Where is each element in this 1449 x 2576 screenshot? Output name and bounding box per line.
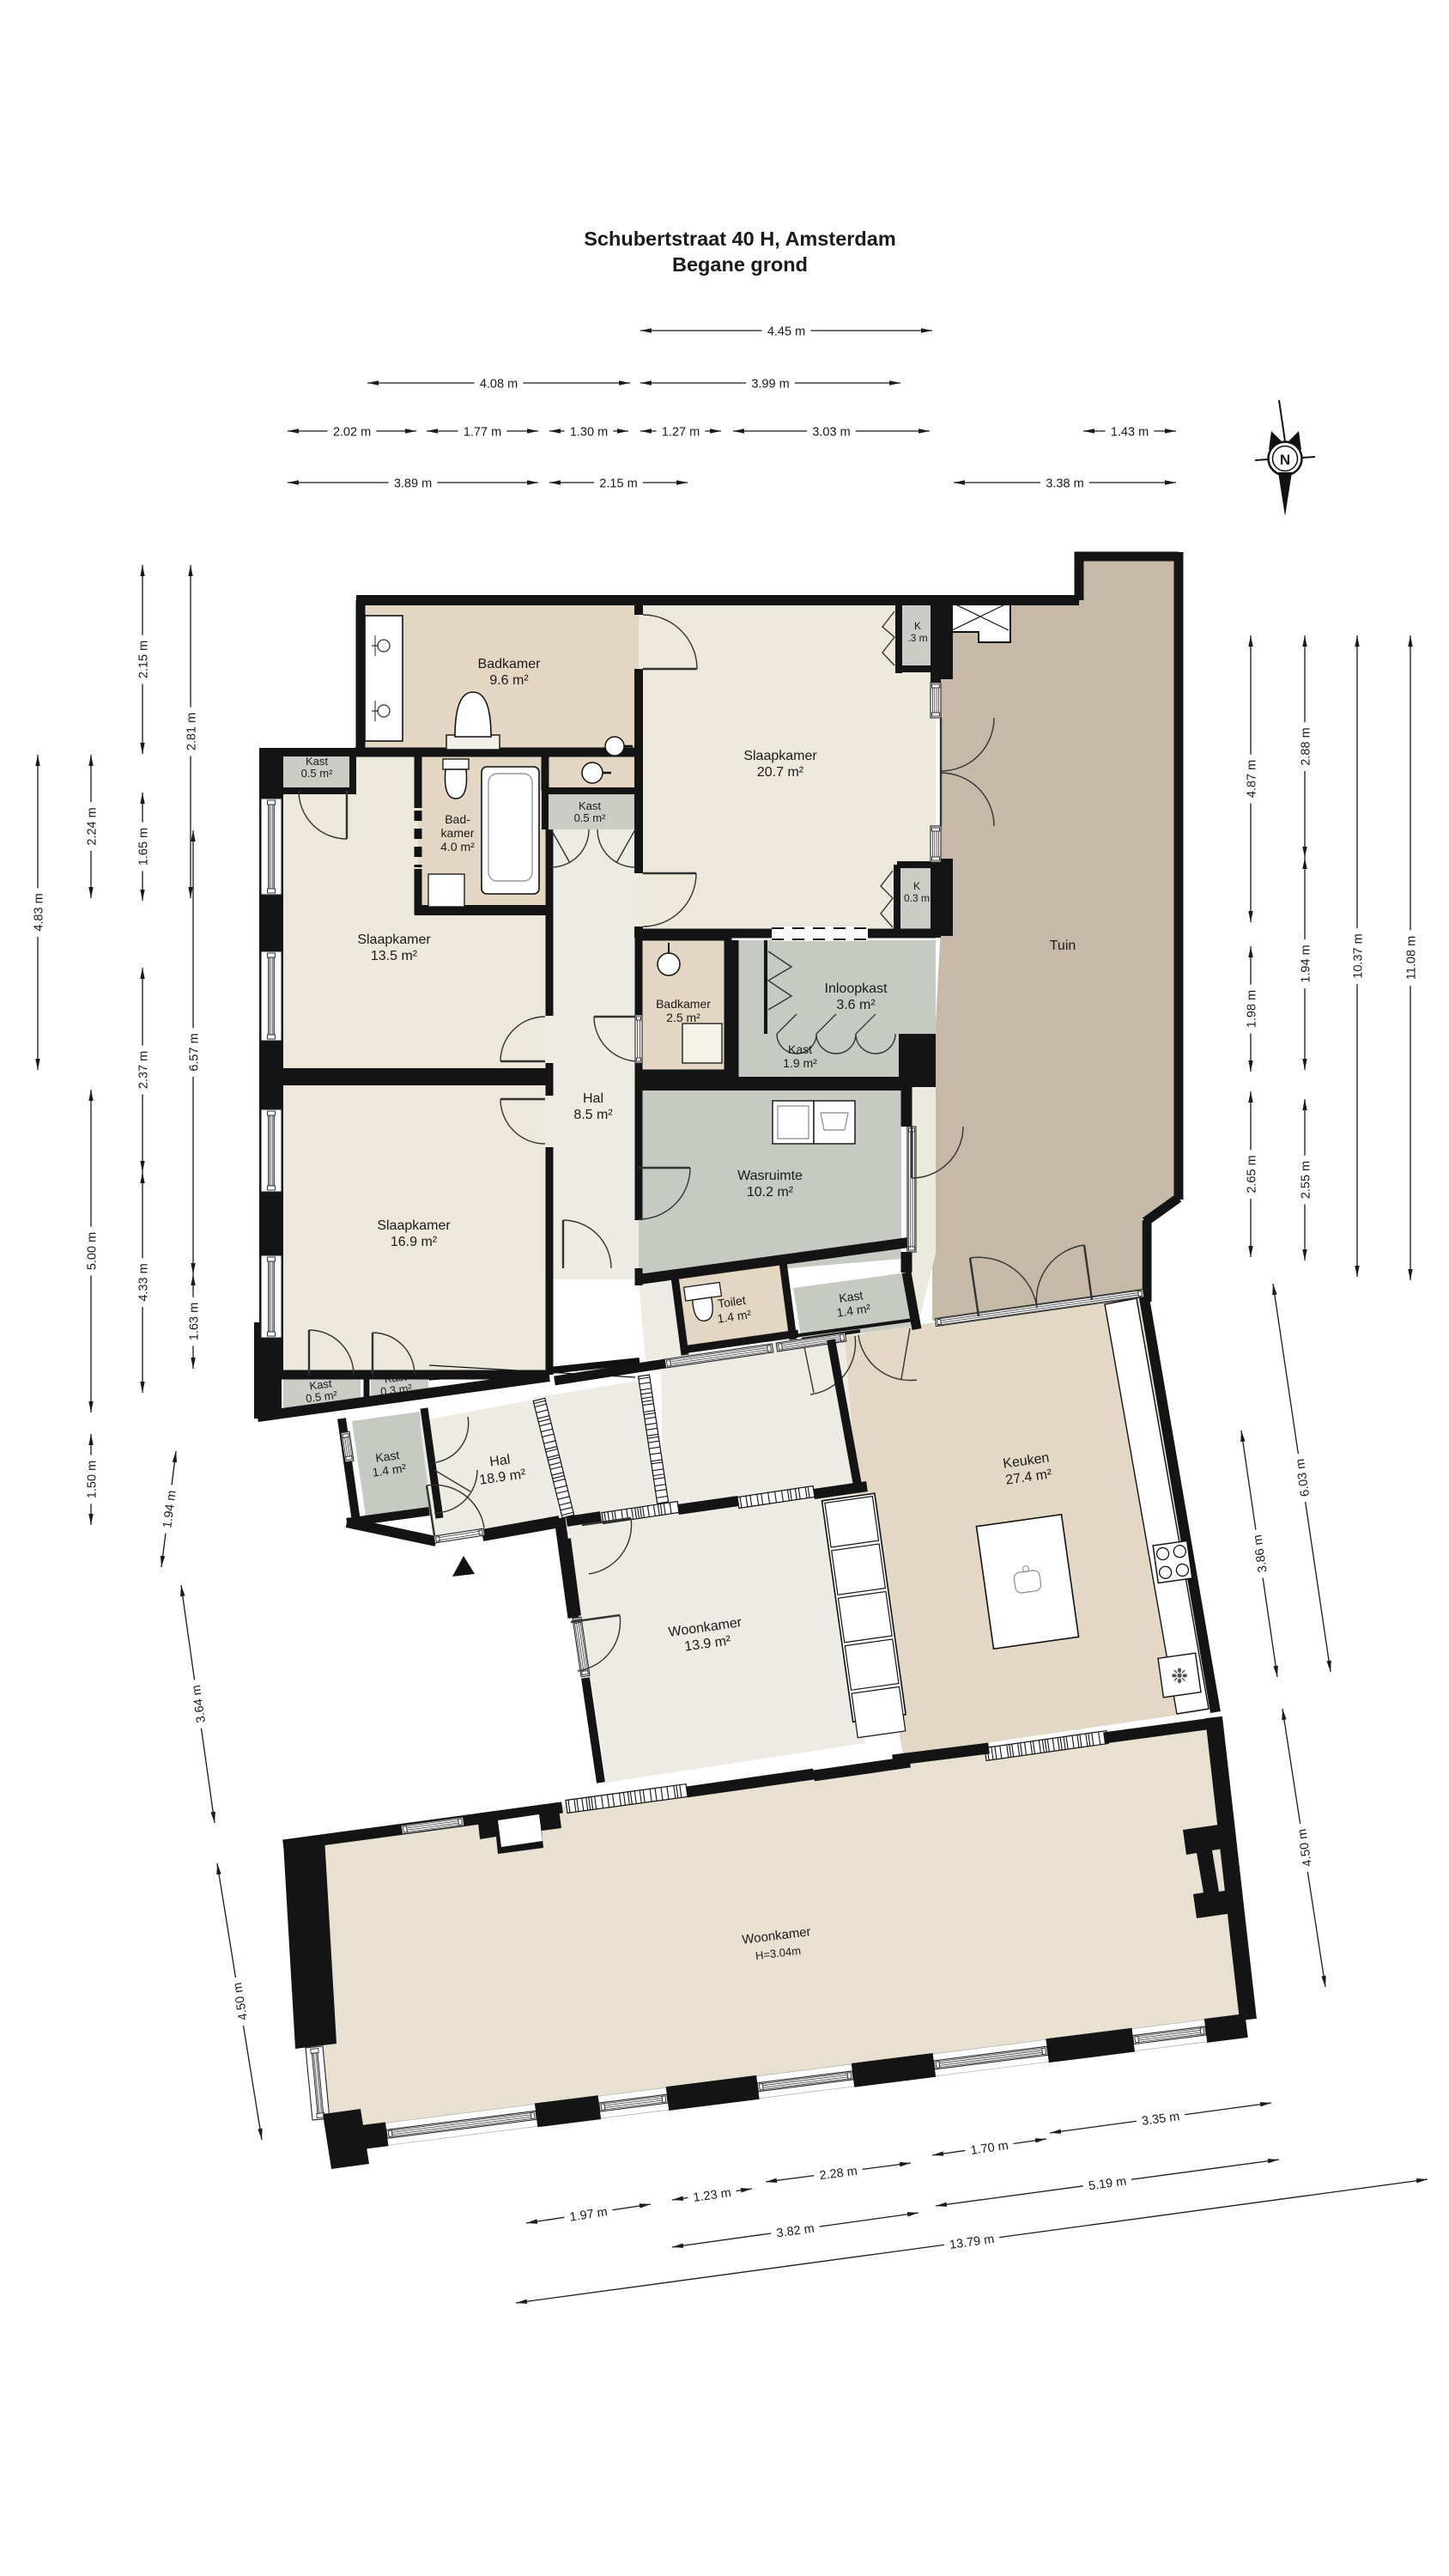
svg-text:Badkamer: Badkamer [478, 657, 542, 671]
svg-text:2.24 m: 2.24 m [86, 807, 100, 845]
svg-text:1.63 m: 1.63 m [188, 1303, 202, 1340]
svg-text:2.5 m²: 2.5 m² [666, 1011, 700, 1024]
svg-text:2.02 m: 2.02 m [333, 426, 371, 440]
svg-text:9.6 m²: 9.6 m² [489, 673, 529, 688]
svg-text:K: K [913, 880, 920, 892]
svg-text:10.37 m: 10.37 m [1352, 933, 1366, 978]
svg-text:2.37 m: 2.37 m [137, 1051, 151, 1089]
svg-text:3.99 m: 3.99 m [751, 378, 789, 392]
svg-text:0.5 m²: 0.5 m² [574, 811, 607, 824]
svg-text:Kast: Kast [306, 755, 328, 768]
svg-text:Hal: Hal [583, 1091, 603, 1106]
svg-text:1.98 m: 1.98 m [1246, 990, 1259, 1028]
svg-text:3.03 m: 3.03 m [812, 426, 850, 440]
svg-text:4.83 m: 4.83 m [33, 893, 46, 931]
svg-text:1.43 m: 1.43 m [1111, 426, 1149, 440]
svg-text:N: N [1280, 452, 1290, 468]
svg-text:.3 m: .3 m [907, 632, 927, 644]
svg-text:2.55 m: 2.55 m [1300, 1161, 1313, 1199]
svg-text:0.3 m: 0.3 m [904, 892, 930, 904]
svg-text:Begane grond: Begane grond [672, 253, 808, 276]
svg-text:Kast: Kast [579, 799, 601, 812]
svg-text:Tuin: Tuin [1050, 939, 1076, 953]
svg-text:10.2 m²: 10.2 m² [747, 1185, 794, 1200]
svg-text:13.5 m²: 13.5 m² [371, 949, 418, 963]
svg-text:2.81 m: 2.81 m [185, 713, 199, 750]
svg-text:0.5 m²: 0.5 m² [301, 767, 334, 780]
svg-text:Slaapkamer: Slaapkamer [357, 933, 431, 947]
svg-text:Badkamer: Badkamer [656, 997, 711, 1011]
svg-text:2.15 m: 2.15 m [137, 641, 151, 678]
svg-text:1.50 m: 1.50 m [86, 1461, 100, 1498]
svg-text:Kast: Kast [788, 1042, 812, 1056]
svg-text:1.27 m: 1.27 m [662, 426, 700, 440]
svg-text:2.15 m: 2.15 m [599, 477, 637, 491]
svg-text:11.08 m: 11.08 m [1405, 936, 1419, 980]
svg-text:8.5 m²: 8.5 m² [573, 1108, 613, 1122]
svg-text:3.6 m²: 3.6 m² [836, 998, 876, 1012]
svg-text:1.30 m: 1.30 m [570, 426, 608, 440]
svg-text:5.00 m: 5.00 m [86, 1232, 100, 1270]
svg-text:1.9 m²: 1.9 m² [783, 1056, 817, 1070]
svg-text:4.33 m: 4.33 m [137, 1263, 151, 1301]
svg-text:6.57 m: 6.57 m [188, 1033, 202, 1071]
svg-text:Inloopkast: Inloopkast [825, 981, 888, 996]
svg-text:Hal: Hal [488, 1452, 511, 1469]
svg-text:2.88 m: 2.88 m [1300, 727, 1313, 765]
svg-text:3.38 m: 3.38 m [1046, 477, 1083, 491]
svg-text:4.45 m: 4.45 m [767, 325, 805, 339]
svg-text:Wasruimte: Wasruimte [737, 1169, 803, 1183]
svg-text:3.89 m: 3.89 m [394, 477, 432, 491]
svg-text:1.94 m: 1.94 m [1300, 945, 1313, 982]
svg-text:❉: ❉ [1171, 1665, 1188, 1688]
svg-text:2.65 m: 2.65 m [1246, 1155, 1259, 1193]
svg-text:1.77 m: 1.77 m [464, 426, 501, 440]
svg-text:20.7 m²: 20.7 m² [757, 765, 804, 780]
svg-text:Slaapkamer: Slaapkamer [377, 1218, 451, 1233]
svg-text:Schubertstraat 40 H, Amsterdam: Schubertstraat 40 H, Amsterdam [584, 228, 896, 250]
svg-text:4.87 m: 4.87 m [1246, 760, 1259, 798]
svg-text:Bad-: Bad- [445, 812, 470, 826]
svg-text:1.65 m: 1.65 m [137, 828, 151, 866]
svg-text:Slaapkamer: Slaapkamer [743, 749, 817, 763]
svg-text:K: K [914, 620, 921, 632]
svg-text:16.9 m²: 16.9 m² [391, 1235, 438, 1249]
svg-text:4.08 m: 4.08 m [480, 378, 518, 392]
svg-text:kamer: kamer [441, 826, 475, 840]
svg-text:4.0 m²: 4.0 m² [440, 840, 475, 854]
